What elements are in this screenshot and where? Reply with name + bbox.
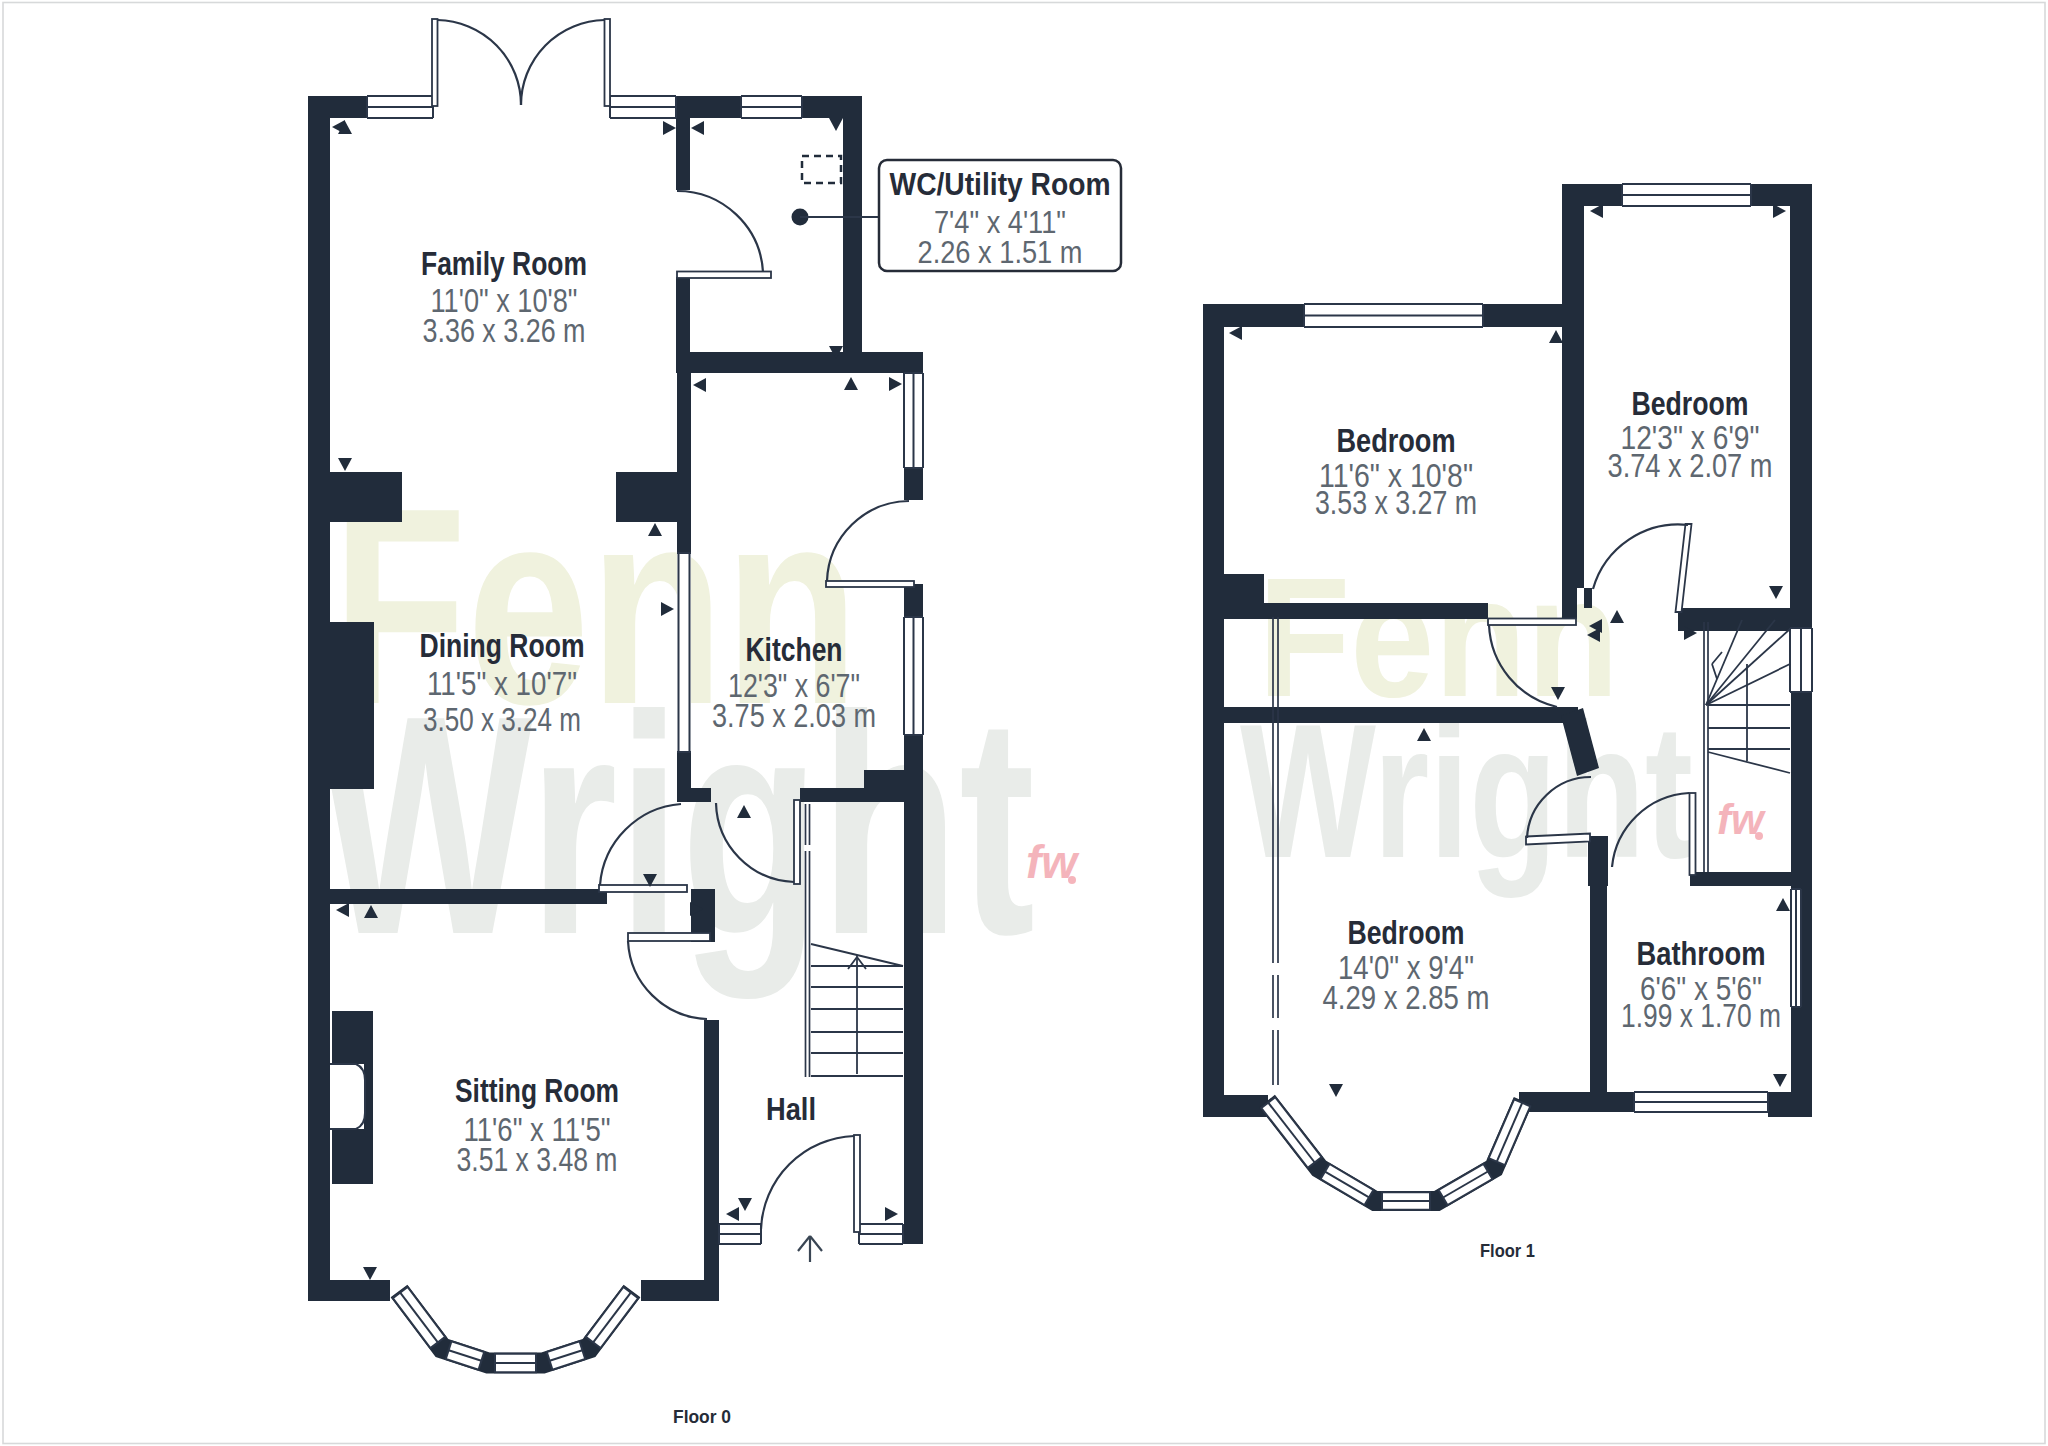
svg-text:2.26 x 1.51 m: 2.26 x 1.51 m: [918, 235, 1083, 270]
svg-text:Sitting Room: Sitting Room: [455, 1071, 619, 1109]
svg-text:3.50 x 3.24 m: 3.50 x 3.24 m: [423, 701, 581, 738]
svg-text:3.75 x 2.03 m: 3.75 x 2.03 m: [712, 697, 876, 734]
svg-text:Family Room: Family Room: [421, 244, 587, 282]
svg-text:Bedroom: Bedroom: [1348, 913, 1465, 951]
svg-text:Kitchen: Kitchen: [746, 630, 843, 668]
svg-text:4.29 x 2.85 m: 4.29 x 2.85 m: [1323, 979, 1490, 1016]
svg-text:3.51 x 3.48 m: 3.51 x 3.48 m: [457, 1141, 618, 1178]
svg-text:Dining Room: Dining Room: [420, 626, 585, 664]
svg-text:1.99 x 1.70 m: 1.99 x 1.70 m: [1621, 997, 1781, 1034]
svg-text:Floor 0: Floor 0: [673, 1406, 731, 1427]
svg-text:3.74 x 2.07 m: 3.74 x 2.07 m: [1608, 447, 1773, 484]
svg-text:Bathroom: Bathroom: [1637, 934, 1766, 972]
svg-text:Hall: Hall: [766, 1092, 816, 1127]
svg-text:3.53 x 3.27 m: 3.53 x 3.27 m: [1315, 484, 1477, 521]
svg-text:Floor 1: Floor 1: [1480, 1240, 1535, 1261]
svg-text:Bedroom: Bedroom: [1632, 384, 1749, 422]
svg-text:Bedroom: Bedroom: [1337, 421, 1456, 459]
svg-text:11'5" x 10'7": 11'5" x 10'7": [427, 665, 577, 702]
svg-text:3.36 x 3.26 m: 3.36 x 3.26 m: [423, 312, 586, 349]
svg-text:WC/Utility Room: WC/Utility Room: [890, 166, 1111, 202]
